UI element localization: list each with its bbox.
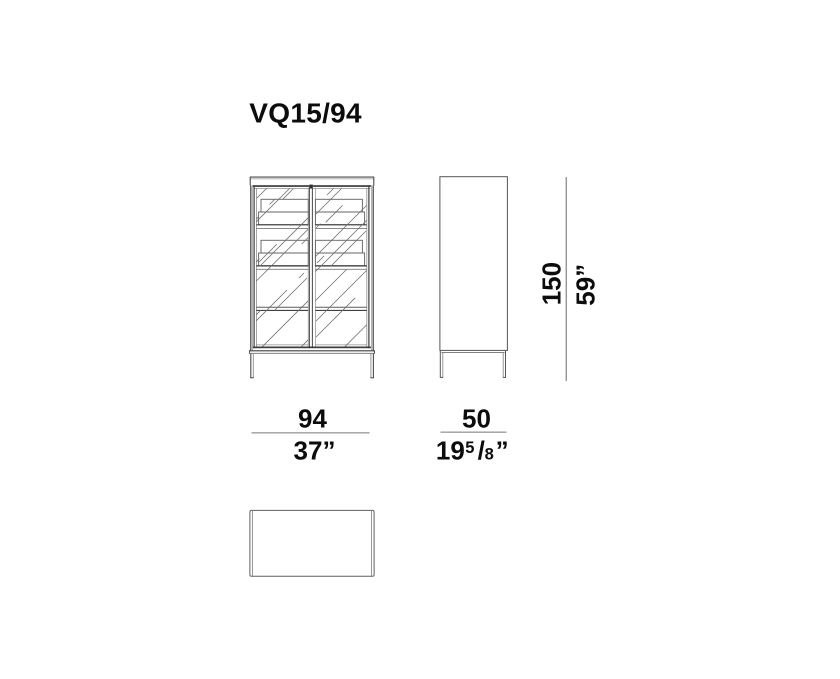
svg-text:94: 94 [298, 404, 327, 434]
svg-text:VQ15/94: VQ15/94 [249, 98, 362, 129]
svg-text:59”: 59” [571, 264, 601, 306]
svg-text:50: 50 [462, 403, 491, 433]
svg-text:37”: 37” [294, 436, 336, 466]
svg-text:8: 8 [485, 446, 494, 464]
svg-text:150: 150 [537, 262, 567, 305]
svg-text:19: 19 [436, 436, 465, 466]
svg-text:”: ” [496, 436, 509, 466]
svg-text:5: 5 [465, 439, 474, 457]
